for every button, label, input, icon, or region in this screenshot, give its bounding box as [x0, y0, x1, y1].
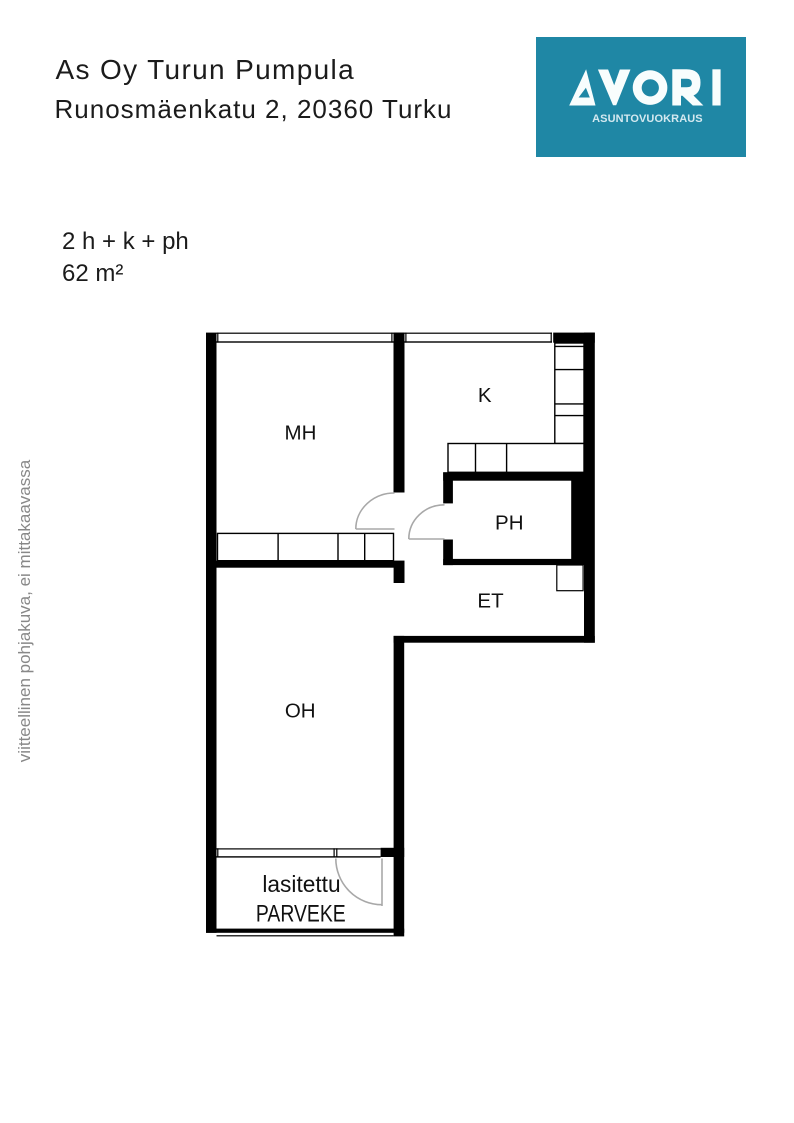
svg-text:MH: MH	[285, 421, 317, 444]
svg-text:PH: PH	[495, 512, 523, 535]
svg-text:PARVEKE: PARVEKE	[256, 901, 346, 928]
svg-text:K: K	[478, 384, 492, 407]
svg-text:lasitettu: lasitettu	[262, 871, 340, 897]
svg-text:ET: ET	[477, 589, 504, 612]
svg-text:OH: OH	[285, 699, 316, 722]
